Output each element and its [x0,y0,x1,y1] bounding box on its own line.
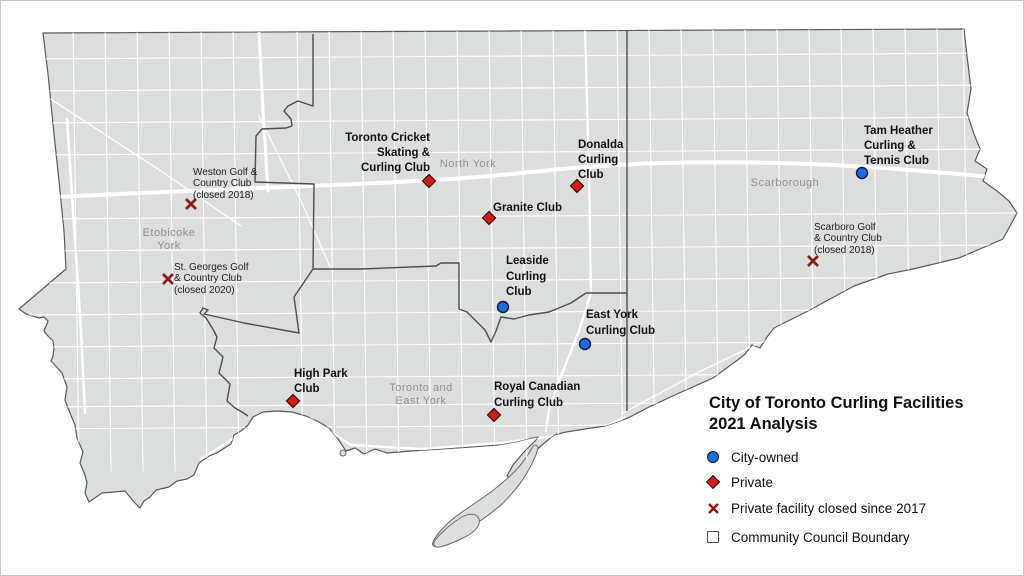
label-weston-golf: Weston Golf & Country Club (closed 2018) [193,167,257,201]
legend-item-label: Community Council Boundary [731,530,910,545]
label-royal-canadian: Royal Canadian Curling Club [494,380,580,411]
legend-title: City of Toronto Curling Facilities 2021 … [709,393,964,434]
label-scarboro-golf: Scarboro Golf & Country Club (closed 201… [814,222,882,256]
legend-item-boundary: Community Council Boundary [707,527,910,547]
label-toronto-cricket: Toronto Cricket Skating & Curling Club [345,131,430,176]
district-label-toronto-east-york: Toronto and East York [389,382,453,407]
closed-x-icon [707,502,723,515]
district-label-etobicoke-york: Etobicoke York [143,227,196,252]
label-granite-club: Granite Club [493,201,562,216]
marker-east-york-circle [580,339,591,350]
label-tam-heather: Tam Heather Curling & Tennis Club [864,124,933,169]
legend-item-city-owned: City-owned [707,447,799,467]
closed-x-icon-svg [707,502,720,515]
legend-item-label: Private facility closed since 2017 [731,501,926,516]
district-label-scarborough: Scarborough [751,177,820,190]
toronto-curling-map: Etobicoke York North York Scarborough To… [0,0,1024,576]
district-label-north-york: North York [440,158,496,171]
label-high-park: High Park Club [294,367,348,397]
legend-item-label: Private [731,475,773,490]
private-diamond-icon [707,477,723,487]
city-owned-circle-icon [707,451,723,463]
legend-item-closed: Private facility closed since 2017 [707,498,926,518]
legend-item-private: Private [707,472,773,492]
label-east-york-club: East York Curling Club [586,308,655,339]
marker-tam-heather-circle [857,168,868,179]
label-donalda: Donalda Curling Club [578,138,623,183]
boundary-square-icon [707,531,723,543]
label-st-georges-golf: St. Georges Golf & Country Club (closed … [174,262,248,296]
label-leaside: Leaside Curling Club [506,254,549,301]
marker-leaside-circle [498,302,509,313]
legend-item-label: City-owned [731,450,799,465]
toronto-islands [340,445,538,547]
